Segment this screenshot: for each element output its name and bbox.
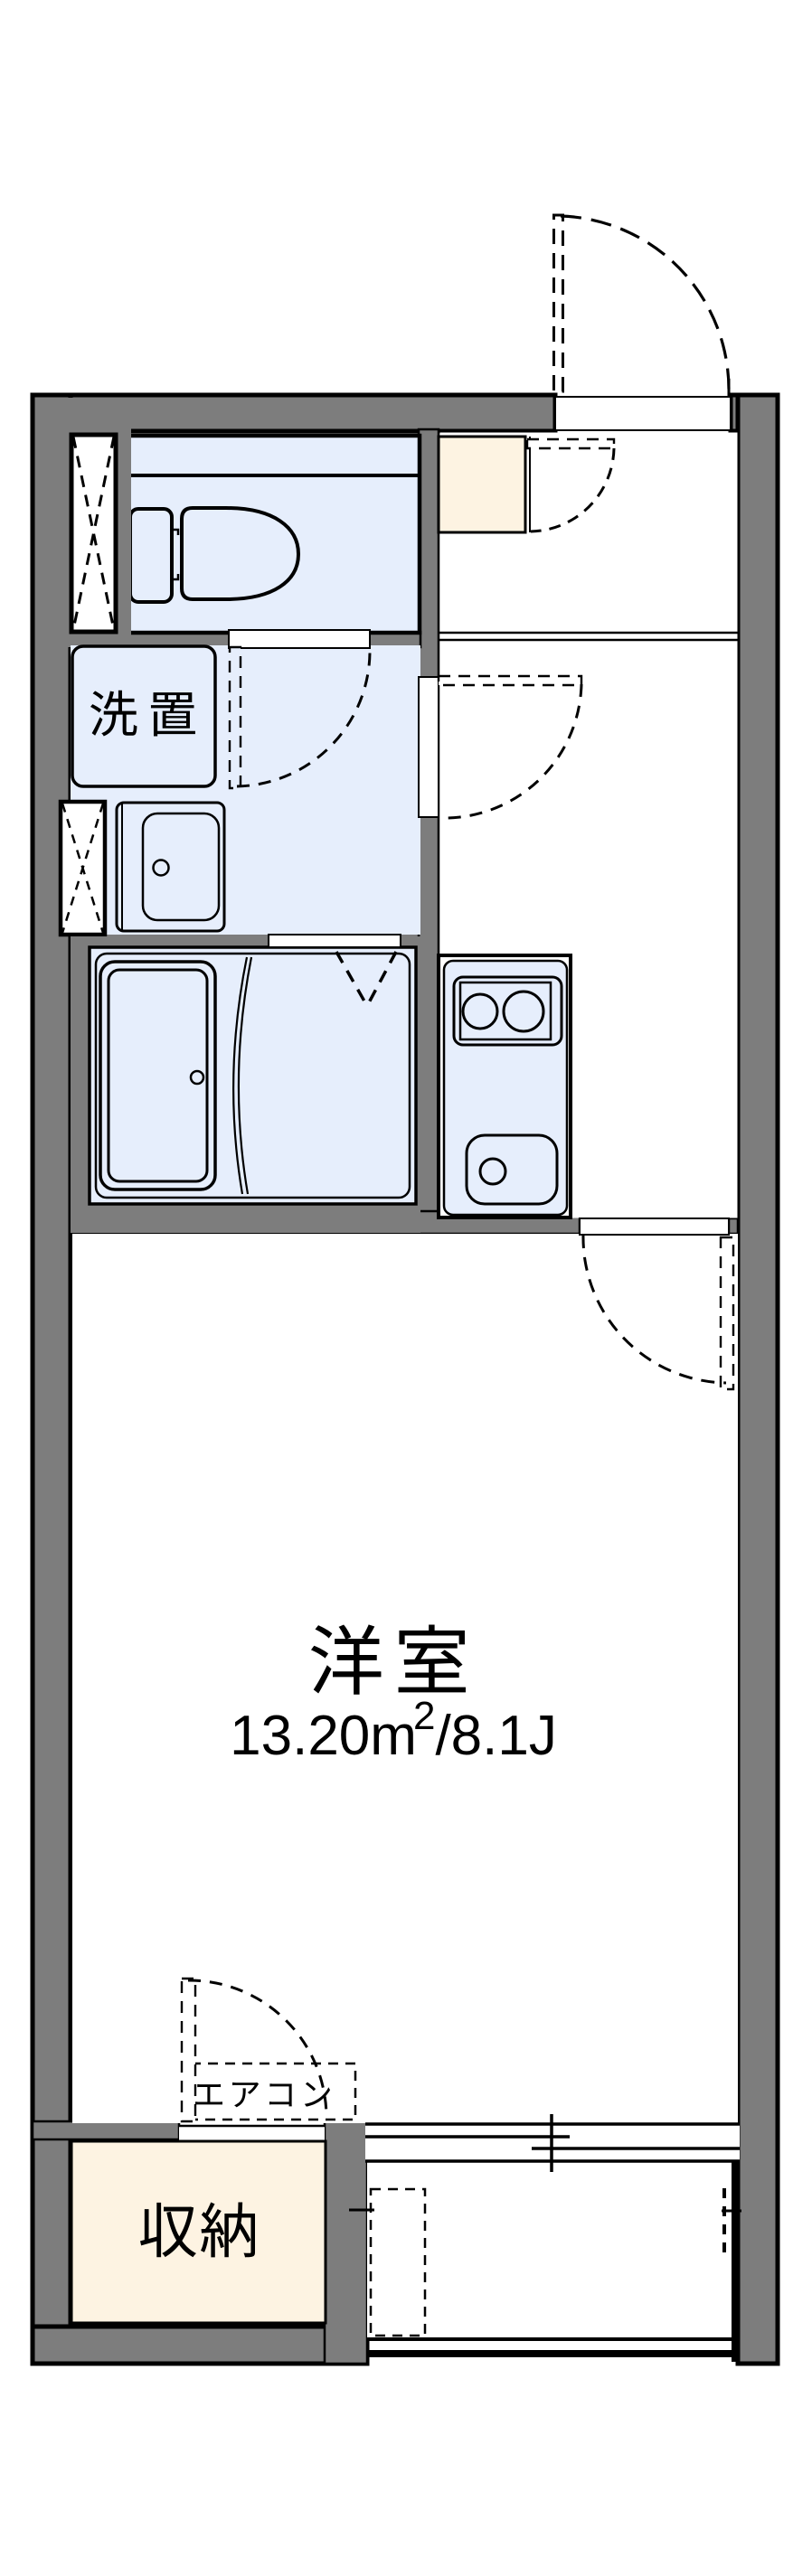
svg-text:13.20m2/8.1J: 13.20m2/8.1J: [230, 1694, 557, 1767]
